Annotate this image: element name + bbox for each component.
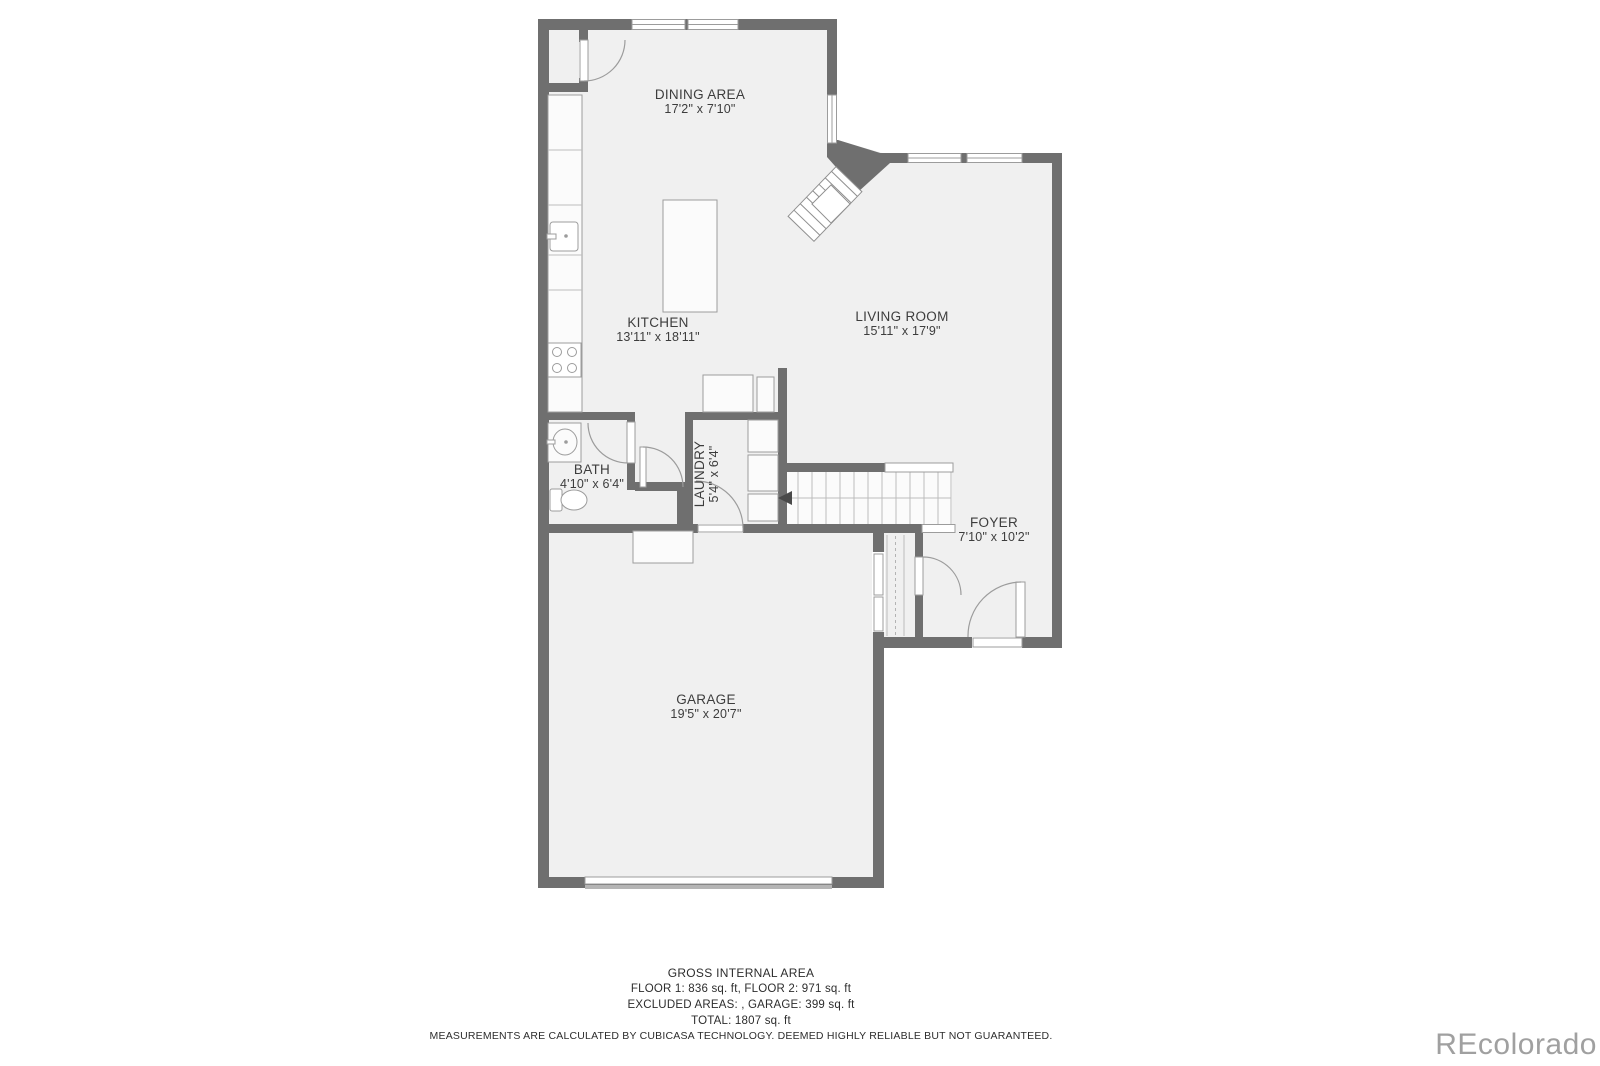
garage-door bbox=[585, 877, 832, 889]
total-area-line: TOTAL: 1807 sq. ft bbox=[430, 1013, 1053, 1029]
garage-closet-door bbox=[872, 552, 885, 632]
room-label-living: LIVING ROOM 15'11" x 17'9" bbox=[855, 309, 948, 339]
room-name: BATH bbox=[560, 462, 624, 477]
room-label-foyer: FOYER 7'10" x 10'2" bbox=[958, 515, 1029, 545]
room-name: LIVING ROOM bbox=[855, 309, 948, 324]
room-label-garage: GARAGE 19'5" x 20'7" bbox=[670, 692, 741, 722]
stove bbox=[548, 343, 581, 377]
floor-areas-line: FLOOR 1: 836 sq. ft, FLOOR 2: 971 sq. ft bbox=[430, 981, 1053, 997]
floor-area bbox=[538, 19, 1062, 888]
room-dims: 13'11" x 18'11" bbox=[616, 330, 700, 345]
kitchen-sink bbox=[547, 222, 578, 251]
recolorado-watermark: REcolorado bbox=[1435, 1028, 1597, 1062]
washer-dryer bbox=[748, 420, 778, 521]
floor-plan-canvas: DINING AREA 17'2" x 7'10" KITCHEN 13'11"… bbox=[0, 0, 1600, 1066]
room-dims: 19'5" x 20'7" bbox=[670, 707, 741, 722]
bath-vanity bbox=[547, 423, 581, 462]
room-dims: 15'11" x 17'9" bbox=[855, 324, 948, 339]
room-label-kitchen: KITCHEN 13'11" x 18'11" bbox=[616, 315, 700, 345]
staircase bbox=[787, 472, 952, 524]
gross-area-title: GROSS INTERNAL AREA bbox=[430, 965, 1053, 981]
room-name: GARAGE bbox=[670, 692, 741, 707]
room-name: FOYER bbox=[958, 515, 1029, 530]
disclaimer-line: MEASUREMENTS ARE CALCULATED BY CUBICASA … bbox=[430, 1029, 1053, 1044]
room-name: LAUNDRY bbox=[692, 441, 707, 507]
water-heater bbox=[633, 531, 693, 563]
excluded-areas-line: EXCLUDED AREAS: , GARAGE: 399 sq. ft bbox=[430, 997, 1053, 1013]
room-name: DINING AREA bbox=[655, 87, 745, 102]
toilet bbox=[550, 489, 587, 511]
room-label-bath: BATH 4'10" x 6'4" bbox=[560, 462, 624, 492]
floor-plan-drawing bbox=[0, 0, 1600, 1066]
room-dims: 5'4" x 6'4" bbox=[707, 441, 722, 507]
room-name: KITCHEN bbox=[616, 315, 700, 330]
room-label-laundry: LAUNDRY 5'4" x 6'4" bbox=[692, 441, 722, 507]
room-dims: 17'2" x 7'10" bbox=[655, 102, 745, 117]
refrigerator bbox=[703, 375, 774, 412]
room-dims: 7'10" x 10'2" bbox=[958, 530, 1029, 545]
area-summary: GROSS INTERNAL AREA FLOOR 1: 836 sq. ft,… bbox=[430, 965, 1053, 1044]
room-dims: 4'10" x 6'4" bbox=[560, 477, 624, 492]
kitchen-island bbox=[663, 200, 717, 312]
room-label-dining: DINING AREA 17'2" x 7'10" bbox=[655, 87, 745, 117]
